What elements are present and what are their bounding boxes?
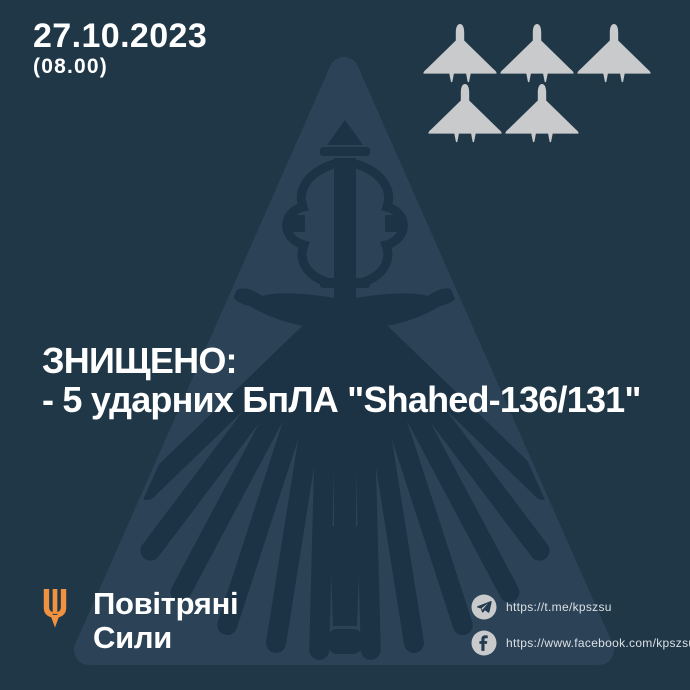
telegram-icon[interactable] xyxy=(471,594,497,620)
headline: ЗНИЩЕНО: - 5 ударних БпЛА "Shahed-136/13… xyxy=(42,341,641,419)
shahed-drone-icon xyxy=(429,84,502,142)
headline-detail: - 5 ударних БпЛА "Shahed-136/131" xyxy=(42,380,641,419)
shahed-drone-icon xyxy=(424,24,497,82)
date-block: 27.10.2023 (08.00) xyxy=(33,17,207,79)
facebook-row: https://www.facebook.com/kpszsu xyxy=(471,630,690,656)
date-text: 27.10.2023 xyxy=(33,17,207,55)
brand-line2: Сили xyxy=(93,621,238,655)
drones-group xyxy=(424,24,651,142)
facebook-url[interactable]: https://www.facebook.com/kpszsu xyxy=(506,636,690,650)
shahed-drone-icon xyxy=(506,84,579,142)
facebook-icon[interactable] xyxy=(471,630,497,656)
headline-title: ЗНИЩЕНО: xyxy=(42,341,641,380)
shahed-drone-icon xyxy=(501,24,574,82)
telegram-url[interactable]: https://t.me/kpszsu xyxy=(506,600,612,614)
infographic-canvas: 27.10.2023 (08.00) ЗНИЩЕНО: - 5 ударних … xyxy=(0,0,690,690)
telegram-row: https://t.me/kpszsu xyxy=(471,594,612,620)
trident-icon xyxy=(42,589,68,628)
time-text: (08.00) xyxy=(33,55,207,79)
brand-name: Повітряні Сили xyxy=(93,587,238,655)
shahed-drone-icon xyxy=(578,24,651,82)
brand-line1: Повітряні xyxy=(93,587,238,621)
